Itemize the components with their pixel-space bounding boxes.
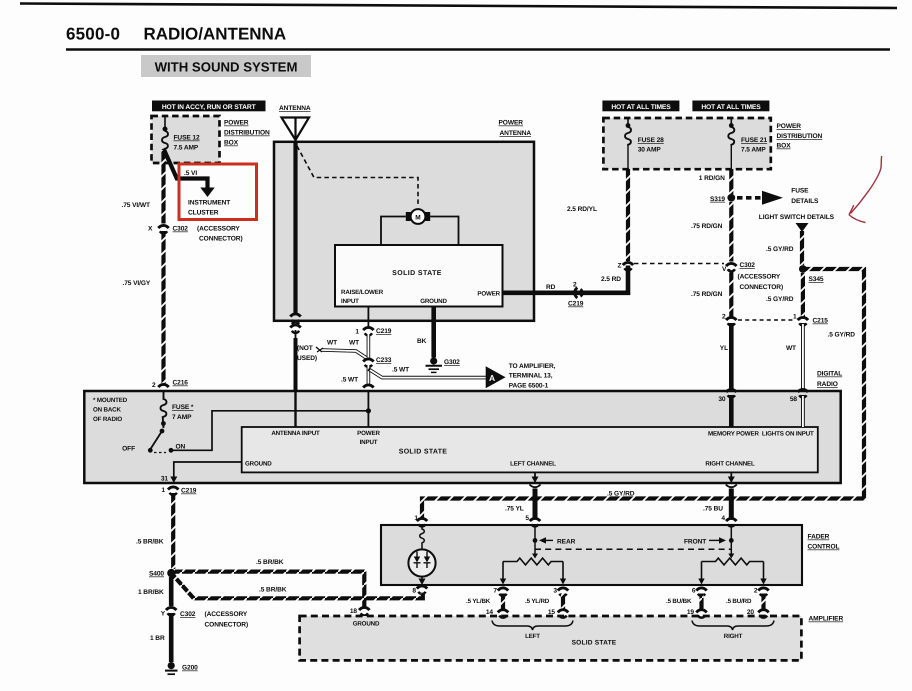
svg-text:HOT AT ALL TIMES: HOT AT ALL TIMES [701,104,761,111]
svg-text:* MOUNTED: * MOUNTED [93,397,128,404]
svg-text:(ACCESSORY: (ACCESSORY [738,274,781,281]
svg-text:ANTENNA: ANTENNA [500,130,532,137]
svg-text:58: 58 [790,396,798,403]
svg-text:OFF: OFF [122,446,135,453]
svg-text:FRONT: FRONT [684,539,706,546]
svg-text:1 RD/GN: 1 RD/GN [699,175,725,182]
svg-text:C302: C302 [180,611,196,618]
svg-text:.75 VI/GY: .75 VI/GY [123,280,151,287]
svg-text:WT: WT [786,345,796,352]
svg-text:GROUND: GROUND [420,298,447,305]
svg-text:C216: C216 [173,380,189,387]
svg-text:FUSE 28: FUSE 28 [638,137,664,144]
svg-text:DISTRIBUTION: DISTRIBUTION [777,133,823,140]
svg-text:LEFT: LEFT [525,633,540,640]
svg-text:5: 5 [525,515,529,522]
svg-text:SOLID STATE: SOLID STATE [399,449,448,456]
svg-text:DETAILS: DETAILS [791,198,819,205]
svg-text:CONNECTOR): CONNECTOR) [199,236,243,243]
svg-text:7.5 AMP: 7.5 AMP [741,147,766,154]
svg-text:2: 2 [152,382,156,389]
svg-text:BOX: BOX [224,140,239,147]
svg-text:18: 18 [350,608,358,615]
svg-text:C302: C302 [740,262,756,269]
svg-text:OF RADIO: OF RADIO [93,416,122,423]
svg-text:YL: YL [720,345,728,352]
svg-text:8: 8 [412,588,416,595]
svg-text:(NOT: (NOT [297,345,313,352]
svg-text:.75 RD/GN: .75 RD/GN [691,291,723,298]
svg-text:6: 6 [692,588,696,595]
svg-text:RAISE/LOWER: RAISE/LOWER [341,289,384,296]
svg-text:AMPLIFIER: AMPLIFIER [809,616,844,623]
svg-text:1: 1 [793,314,797,321]
svg-text:BOX: BOX [777,143,792,150]
svg-text:LEFT CHANNEL: LEFT CHANNEL [510,461,556,468]
svg-text:GROUND: GROUND [353,621,380,628]
svg-text:.5 WT: .5 WT [341,377,358,384]
svg-text:POWER: POWER [357,430,380,437]
svg-text:7.5 AMP: 7.5 AMP [174,145,199,152]
svg-text:DIGITAL: DIGITAL [817,371,842,378]
svg-text:4: 4 [721,515,725,522]
svg-text:X: X [148,226,153,233]
svg-text:FUSE: FUSE [791,188,809,195]
svg-text:FUSE 21: FUSE 21 [741,137,767,144]
svg-text:RADIO/ANTENNA: RADIO/ANTENNA [144,25,287,44]
svg-text:ANTENNA: ANTENNA [279,105,311,112]
svg-text:.5 GY/RD: .5 GY/RD [828,332,856,339]
svg-text:PAGE 6500-1: PAGE 6500-1 [509,383,549,390]
svg-text:.75 RD/GN: .75 RD/GN [691,223,723,230]
svg-text:2: 2 [754,588,758,595]
svg-text:.5 GY/RD: .5 GY/RD [607,491,635,498]
svg-text:1: 1 [355,329,359,336]
svg-text:.5 VI: .5 VI [184,170,197,177]
svg-text:FUSE *: FUSE * [172,404,194,411]
svg-text:CONTROL: CONTROL [808,544,840,551]
svg-text:6500-0: 6500-0 [66,25,120,44]
svg-text:INSTRUMENT: INSTRUMENT [188,200,230,207]
svg-text:POWER: POWER [477,291,500,298]
svg-text:SOLID STATE: SOLID STATE [572,640,617,647]
svg-text:30: 30 [718,396,726,403]
svg-text:2: 2 [722,314,726,321]
svg-text:LIGHT SWITCH DETAILS: LIGHT SWITCH DETAILS [759,214,835,221]
svg-text:.75 BU: .75 BU [703,506,723,513]
svg-text:C302: C302 [173,226,189,233]
svg-text:CONNECTOR): CONNECTOR) [740,284,784,291]
svg-text:WT: WT [327,340,337,347]
svg-text:POWER: POWER [499,120,524,127]
svg-text:REAR: REAR [557,539,576,546]
svg-text:A: A [489,373,495,383]
svg-text:RIGHT CHANNEL: RIGHT CHANNEL [705,461,755,468]
svg-text:DISTRIBUTION: DISTRIBUTION [224,130,270,137]
svg-text:C233: C233 [376,357,392,364]
svg-text:C219: C219 [181,488,197,495]
svg-text:2.5 RD/YL: 2.5 RD/YL [567,206,597,213]
svg-text:INPUT: INPUT [360,439,378,446]
svg-text:S345: S345 [809,276,824,283]
svg-text:.5 BU/BK: .5 BU/BK [666,598,692,605]
svg-text:3: 3 [553,588,557,595]
svg-text:7 AMP: 7 AMP [172,414,192,421]
svg-text:.5 GY/RD: .5 GY/RD [766,246,794,253]
svg-text:(ACCESSORY: (ACCESSORY [197,226,240,233]
svg-text:RD: RD [546,284,556,291]
svg-text:HOT AT ALL TIMES: HOT AT ALL TIMES [611,104,671,111]
svg-text:31: 31 [161,476,169,483]
svg-text:.5 YL/RD: .5 YL/RD [525,598,550,605]
svg-text:30 AMP: 30 AMP [638,147,662,154]
svg-text:.75 VI/WT: .75 VI/WT [122,202,150,209]
svg-text:HOT IN ACCY, RUN OR START: HOT IN ACCY, RUN OR START [162,104,257,111]
svg-text:RIGHT: RIGHT [724,633,743,640]
svg-text:ANTENNA INPUT: ANTENNA INPUT [271,430,320,437]
svg-text:G302: G302 [444,359,460,366]
svg-text:1: 1 [414,515,418,522]
svg-text:USED): USED) [297,355,317,362]
svg-text:WITH SOUND SYSTEM: WITH SOUND SYSTEM [155,60,298,75]
svg-text:C219: C219 [568,301,584,308]
svg-text:.5 BR/BK: .5 BR/BK [256,559,284,566]
svg-text:1: 1 [161,487,165,494]
svg-text:BK: BK [417,338,427,345]
svg-text:GROUND: GROUND [245,461,272,468]
svg-text:.5 BR/BK: .5 BR/BK [136,539,164,546]
svg-text:POWER: POWER [777,123,802,130]
svg-text:WT: WT [349,340,359,347]
svg-text:M: M [415,215,420,222]
svg-text:TERMINAL 13,: TERMINAL 13, [509,373,553,380]
svg-text:S400: S400 [149,571,164,578]
svg-text:.75 YL: .75 YL [505,506,524,513]
svg-text:SOLID STATE: SOLID STATE [392,270,442,277]
svg-text:V: V [722,266,727,273]
svg-text:MEMORY POWER LIGHTS ON INPUT: MEMORY POWER LIGHTS ON INPUT [708,431,814,438]
svg-text:1 BR/BK: 1 BR/BK [138,589,164,596]
svg-text:G200: G200 [182,665,198,672]
svg-text:.5 YL/BK: .5 YL/BK [466,598,491,605]
svg-text:.5 GY/RD: .5 GY/RD [766,296,794,303]
svg-text:Z: Z [618,263,622,270]
svg-text:RADIO: RADIO [817,381,838,388]
svg-text:INPUT: INPUT [341,298,359,305]
svg-text:TO AMPLIFIER,: TO AMPLIFIER, [509,363,556,370]
svg-text:Y: Y [161,611,166,618]
svg-text:FUSE 12: FUSE 12 [174,135,200,142]
svg-text:.5 BR/BK: .5 BR/BK [259,587,287,594]
svg-text:POWER: POWER [224,120,249,127]
svg-text:C219: C219 [376,328,392,335]
svg-text:CLUSTER: CLUSTER [188,210,219,217]
svg-text:S319: S319 [710,196,725,203]
svg-text:FADER: FADER [808,534,830,541]
svg-text:.5 BU/RD: .5 BU/RD [726,598,752,605]
svg-text:C215: C215 [813,318,829,325]
svg-text:7: 7 [493,588,497,595]
svg-text:2.5 RD: 2.5 RD [601,276,621,283]
svg-text:.5 WT: .5 WT [392,367,409,374]
svg-text:(ACCESSORY: (ACCESSORY [205,611,248,618]
svg-text:1 BR: 1 BR [150,635,165,642]
svg-text:CONNECTOR): CONNECTOR) [205,622,249,629]
svg-text:ON BACK: ON BACK [93,407,122,414]
